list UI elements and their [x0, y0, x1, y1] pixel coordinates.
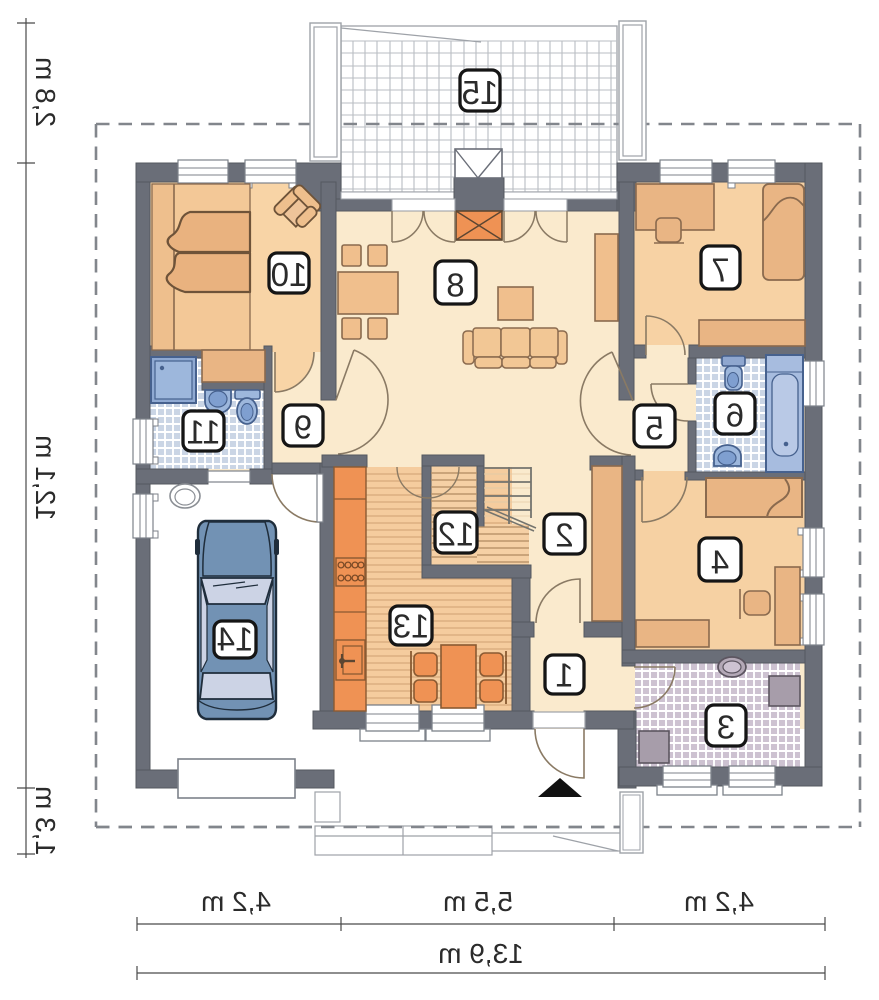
svg-text:4,2 m: 4,2 m	[201, 886, 271, 917]
svg-text:4: 4	[711, 544, 729, 581]
svg-text:1,3 m: 1,3 m	[30, 786, 61, 856]
svg-text:10: 10	[271, 256, 308, 293]
svg-text:6: 6	[726, 397, 744, 434]
svg-text:12,1 m: 12,1 m	[30, 435, 61, 521]
svg-text:9: 9	[294, 409, 312, 446]
svg-text:2: 2	[555, 517, 573, 554]
svg-text:3: 3	[717, 709, 735, 746]
svg-text:14: 14	[217, 621, 254, 658]
svg-text:4,2 m: 4,2 m	[684, 886, 754, 917]
svg-text:2,8 m: 2,8 m	[30, 57, 61, 127]
svg-text:13: 13	[393, 608, 430, 645]
svg-text:7: 7	[711, 252, 729, 289]
svg-text:8: 8	[446, 267, 464, 304]
svg-text:13,9 m: 13,9 m	[438, 938, 524, 969]
svg-text:15: 15	[462, 74, 499, 111]
svg-text:1: 1	[555, 657, 573, 694]
svg-text:12: 12	[438, 516, 475, 553]
svg-text:5,5 m: 5,5 m	[443, 886, 513, 917]
svg-text:11: 11	[186, 414, 220, 451]
svg-text:5: 5	[645, 410, 663, 447]
